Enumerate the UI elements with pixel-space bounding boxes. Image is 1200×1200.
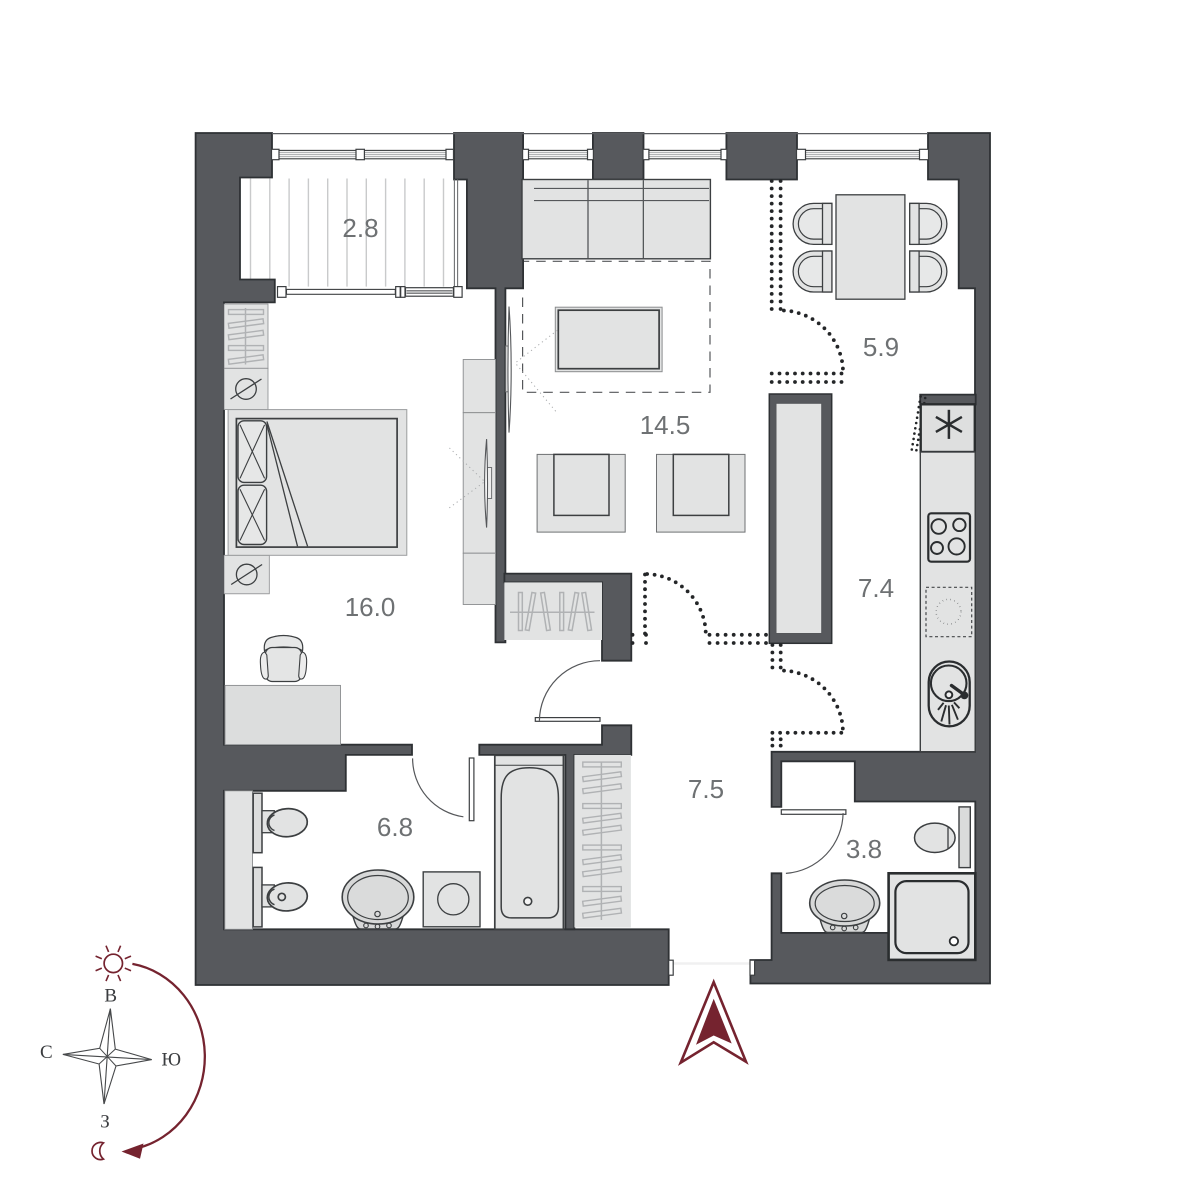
svg-text:16.0: 16.0	[345, 592, 396, 622]
svg-text:7.5: 7.5	[688, 774, 724, 804]
svg-text:З: З	[100, 1112, 110, 1133]
svg-text:3.8: 3.8	[846, 834, 882, 864]
svg-text:7.4: 7.4	[858, 573, 894, 603]
svg-text:14.5: 14.5	[640, 410, 691, 440]
svg-text:2.8: 2.8	[342, 213, 378, 243]
svg-text:6.8: 6.8	[377, 812, 413, 842]
svg-text:Ю: Ю	[162, 1050, 182, 1071]
svg-text:В: В	[104, 985, 117, 1006]
svg-text:5.9: 5.9	[863, 332, 899, 362]
svg-text:С: С	[40, 1042, 53, 1063]
